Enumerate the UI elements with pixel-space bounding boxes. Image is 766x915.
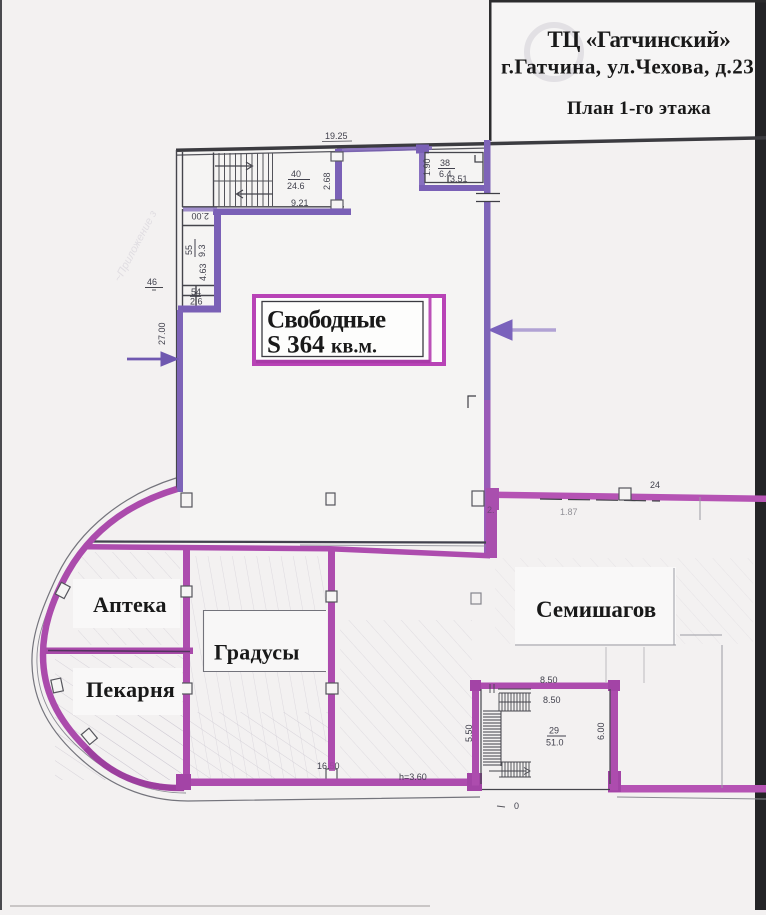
svg-text:1.90: 1.90 xyxy=(422,158,432,176)
svg-text:24.6: 24.6 xyxy=(287,181,305,191)
svg-text:Градусы: Градусы xyxy=(214,640,300,665)
svg-text:0: 0 xyxy=(514,801,519,811)
svg-text:Пекарня: Пекарня xyxy=(86,677,175,702)
svg-text:Свободные: Свободные xyxy=(267,307,386,334)
svg-text:9.21: 9.21 xyxy=(291,198,309,208)
svg-text:8.50: 8.50 xyxy=(543,695,561,705)
svg-text:h=3.60: h=3.60 xyxy=(399,772,427,782)
svg-text:2.00: 2.00 xyxy=(191,211,209,221)
svg-text:51.0: 51.0 xyxy=(546,738,564,748)
svg-text:2.6: 2.6 xyxy=(190,297,203,307)
svg-text:2.68: 2.68 xyxy=(322,172,332,190)
svg-text:55: 55 xyxy=(184,245,194,255)
svg-text:24: 24 xyxy=(650,480,660,490)
svg-text:8.50: 8.50 xyxy=(540,675,558,685)
svg-text:4.63: 4.63 xyxy=(198,263,208,281)
svg-text:16.50: 16.50 xyxy=(317,761,340,771)
svg-text:1.87: 1.87 xyxy=(560,507,578,517)
svg-text:19.25: 19.25 xyxy=(325,131,348,141)
svg-text:Аптека: Аптека xyxy=(93,592,167,617)
svg-text:ТЦ «Гатчинский»: ТЦ «Гатчинский» xyxy=(547,27,730,52)
svg-text:46: 46 xyxy=(147,277,157,287)
svg-text:3.51: 3.51 xyxy=(450,174,468,184)
svg-text:План 1-го этажа: План 1-го этажа xyxy=(567,98,711,119)
svg-text:29: 29 xyxy=(549,726,559,736)
svg-text:27.00: 27.00 xyxy=(157,322,167,345)
svg-text:Семишагов: Семишагов xyxy=(536,597,656,622)
svg-text:54: 54 xyxy=(191,287,201,297)
svg-text:9.3: 9.3 xyxy=(197,244,207,257)
svg-text:2.: 2. xyxy=(487,505,495,515)
svg-text:5.50: 5.50 xyxy=(464,724,474,742)
svg-text:кв.м.: кв.м. xyxy=(331,336,377,358)
svg-text:S 364: S 364 xyxy=(267,332,325,359)
svg-text:38: 38 xyxy=(440,158,450,168)
svg-text:6.00: 6.00 xyxy=(596,722,606,740)
svg-text:40: 40 xyxy=(291,169,301,179)
svg-text:г.Гатчина, ул.Чехова, д.23: г.Гатчина, ул.Чехова, д.23 xyxy=(501,55,754,79)
